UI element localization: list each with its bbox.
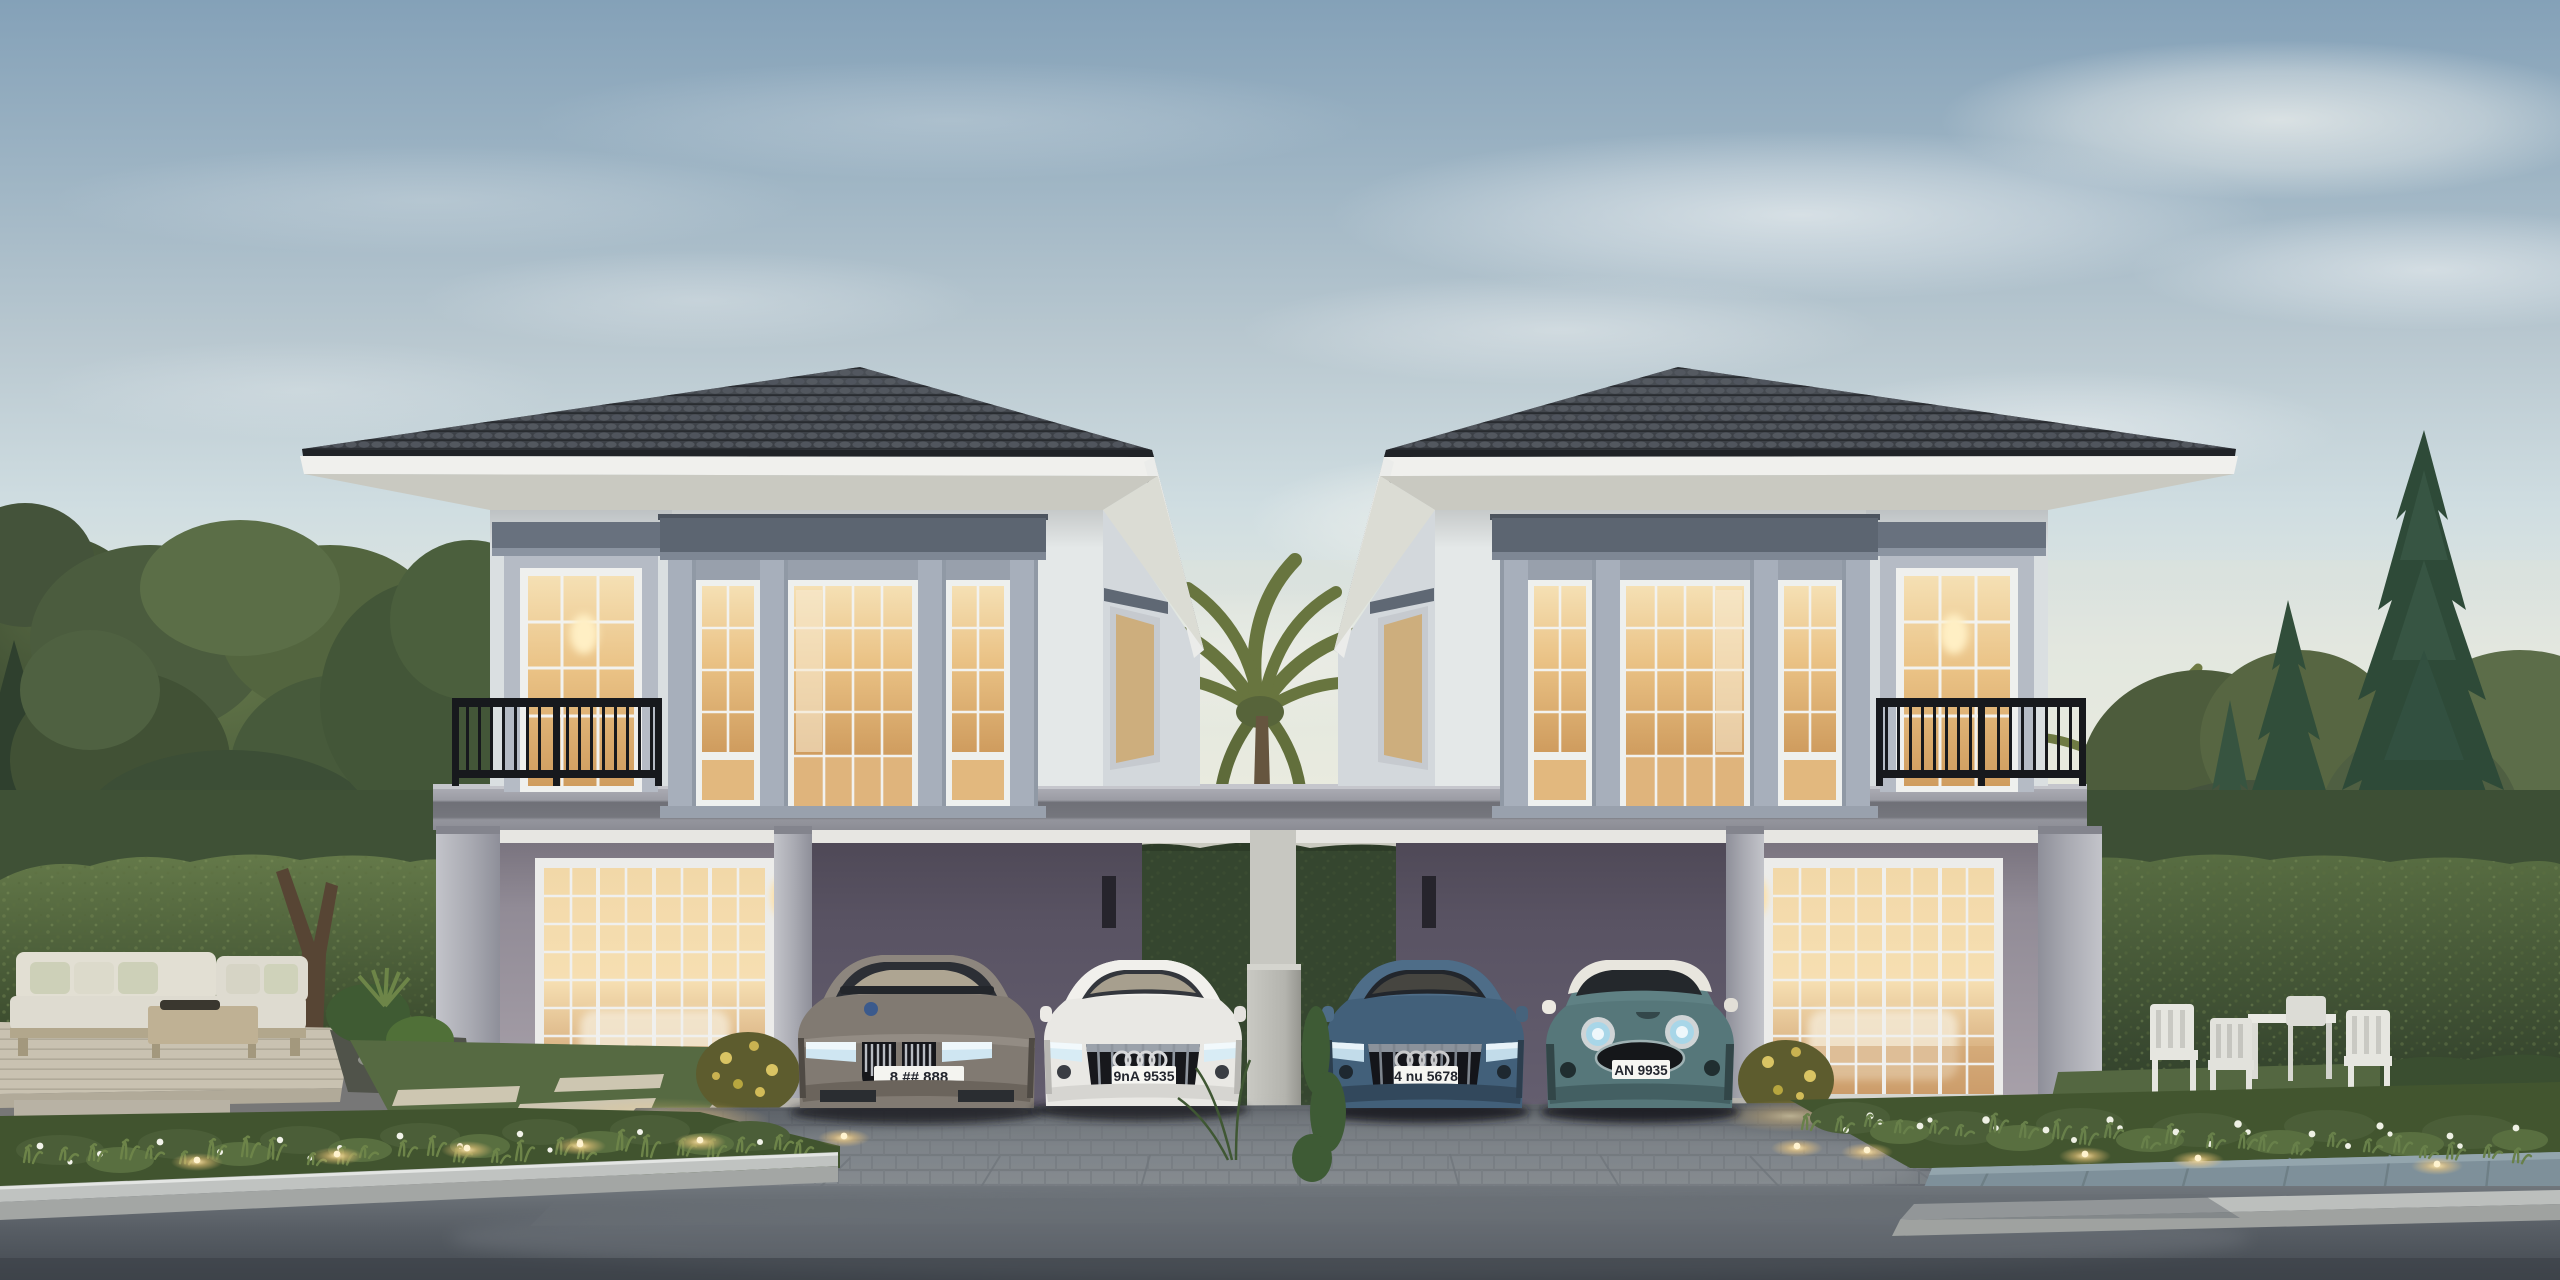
svg-text:AN 9935: AN 9935	[1614, 1063, 1668, 1078]
svg-text:9nA 9535: 9nA 9535	[1114, 1068, 1175, 1084]
svg-text:4 nu 5678: 4 nu 5678	[1394, 1068, 1458, 1084]
